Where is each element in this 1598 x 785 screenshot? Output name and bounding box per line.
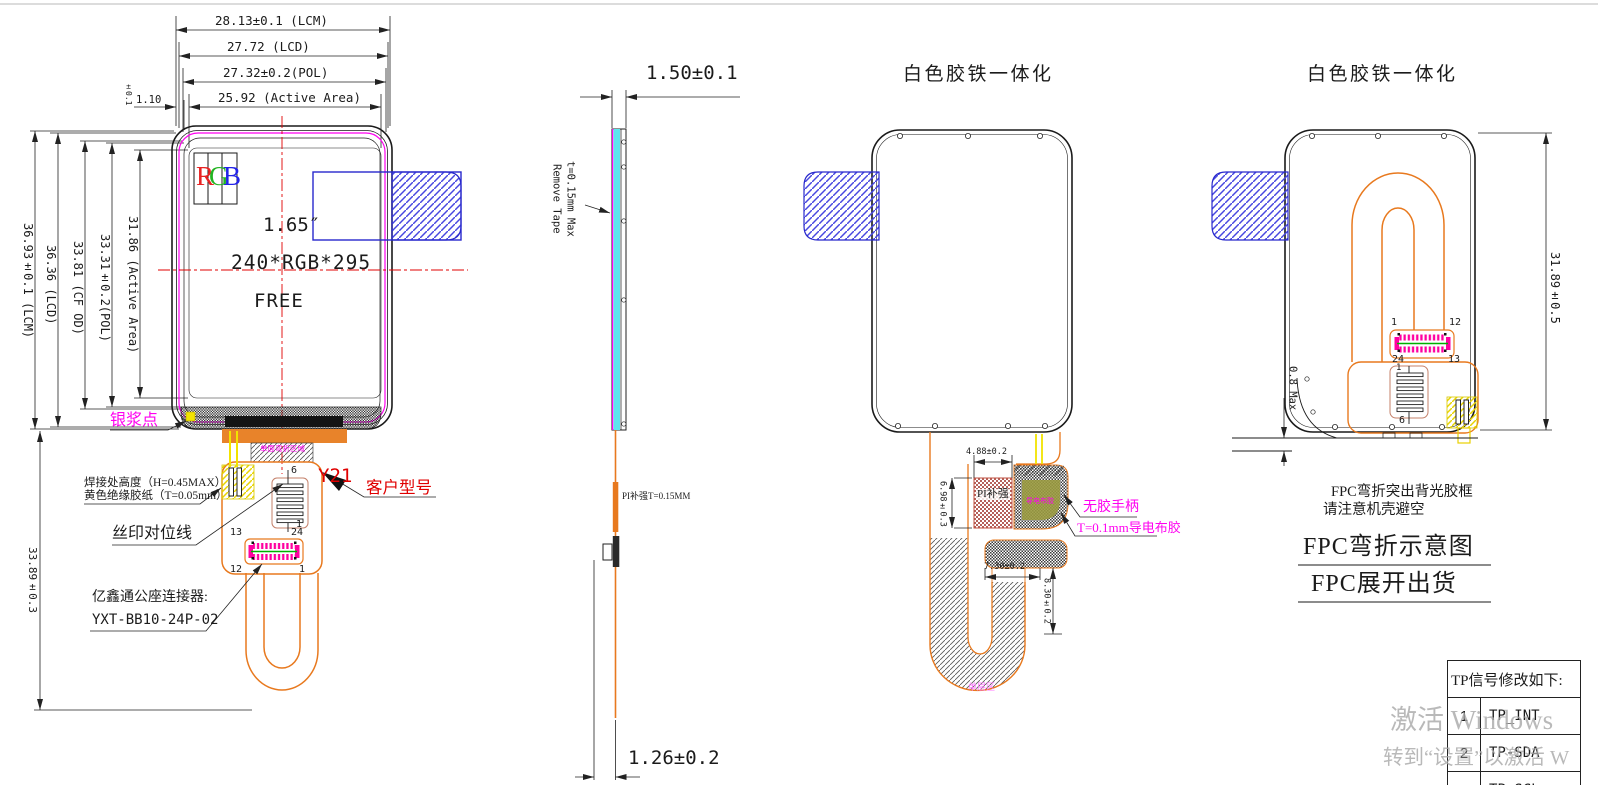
drawing-linework bbox=[0, 0, 1598, 785]
view4-title: 白色胶铁一体化 bbox=[1307, 65, 1458, 84]
dim-lcm-height: 36.93±0.1 (LCM) bbox=[22, 150, 34, 412]
pin-6-zif-view4: 6 bbox=[1399, 416, 1405, 426]
view1-dimension-lines bbox=[30, 16, 390, 710]
panel-size-label: 1.65″ bbox=[263, 216, 320, 235]
bend-zone-label: 单面弯折区域 bbox=[260, 445, 305, 453]
pi-stiffener-note: PI补强T=0.15MM bbox=[622, 492, 690, 501]
fold-diagram-caption: FPC弯折示意图 bbox=[1303, 535, 1474, 559]
pin-12: 12 bbox=[230, 565, 242, 575]
connector-note-line2: YXT-BB10-24P-02 bbox=[92, 613, 218, 627]
conductive-tape-label: T=0.1mm导电布胶 bbox=[1077, 521, 1181, 534]
silk-align-label: 丝印对位线 bbox=[112, 526, 192, 542]
table-row: 3 TP-SCL bbox=[1448, 772, 1580, 785]
dim-fpc-length: 33.89±0.3 bbox=[27, 532, 38, 628]
blue-shield-pad-view4 bbox=[1212, 172, 1288, 240]
dim-cf-height: 33.81 (CF OD) bbox=[72, 168, 84, 408]
connector-side bbox=[613, 536, 620, 567]
dim-gap: 1.10 bbox=[136, 95, 161, 106]
view1-fpc-body bbox=[222, 431, 322, 690]
dim-fpc-thickness: 1.26±0.2 bbox=[628, 749, 720, 768]
drawing-canvas: 28.13±0.1 (LCM) 27.72 (LCD) 27.32±0.2(PO… bbox=[0, 0, 1598, 785]
dim-fold-height: 31.89±0.5 bbox=[1549, 232, 1561, 344]
fold-note-line2: 请注意机壳避空 bbox=[1323, 503, 1425, 518]
customer-model-label: 客户型号 bbox=[366, 480, 432, 497]
pin-13: 13 bbox=[230, 528, 242, 538]
model-code: Y21 bbox=[318, 467, 352, 486]
dim-active-height: 31.86 (Active Area) bbox=[127, 162, 139, 407]
rgb-letter-b: B bbox=[223, 163, 241, 190]
connector-note-line1: 亿鑫通公座连接器: bbox=[92, 591, 208, 605]
dim-tape-offset: 8.30±0.2 bbox=[1042, 572, 1051, 630]
blue-shield-pad-view1 bbox=[313, 172, 461, 240]
zif-finger-contacts-view4 bbox=[1390, 366, 1428, 424]
resolution-label: 240*RGB*295 bbox=[231, 253, 371, 273]
fold-note-line1: FPC弯折突出背光胶框 bbox=[1331, 485, 1473, 500]
tp-row-number: 3 bbox=[1448, 772, 1481, 785]
pin-1-zif-view4: 1 bbox=[1396, 364, 1401, 373]
pi-stiffener-label: PI补强 bbox=[976, 489, 1010, 500]
tp-row-signal: TP_INT bbox=[1481, 698, 1580, 734]
conductive-tape-small-label: 导电布胶 bbox=[1026, 498, 1054, 505]
yellow-insulation-tape-view4 bbox=[1447, 397, 1477, 428]
tp-table-header: TP信号修改如下: bbox=[1448, 661, 1580, 698]
remove-tape-line2: t=0.15mm Max bbox=[565, 140, 576, 258]
dim-lcd-height: 36.36 (LCD) bbox=[45, 160, 57, 410]
view1-bottom-seal-band bbox=[181, 407, 381, 462]
silver-dot-label: 银浆点 bbox=[110, 413, 158, 429]
pin-12-view4: 12 bbox=[1449, 318, 1461, 328]
pi-stiffener-block bbox=[974, 478, 1012, 528]
dim-tape-width: 7.30±0.2 bbox=[984, 563, 1025, 572]
pin-13-view4: 13 bbox=[1448, 355, 1460, 365]
solder-note-line2: 黄色绝缘胶纸（T=0.05mm） bbox=[84, 491, 228, 503]
dim-pol-height: 33.31±0.2(POL) bbox=[99, 165, 111, 410]
solder-note-line1: 焊接处高度（H=0.45MAX） bbox=[84, 478, 226, 490]
dim-lcm-width: 28.13±0.1 (LCM) bbox=[215, 15, 328, 28]
ship-unfolded-caption: FPC展开出货 bbox=[1311, 572, 1457, 596]
tp-row-signal: TP-SCL bbox=[1481, 772, 1580, 785]
glass-stack-cyan bbox=[614, 129, 621, 430]
no-glue-handle-label: 无胶手柄 bbox=[1083, 501, 1139, 515]
dim-thickness: 1.50±0.1 bbox=[646, 64, 738, 83]
tp-signal-table: TP信号修改如下: 1 TP_INT 2 TP-SDA 3 TP-SCL bbox=[1447, 660, 1581, 785]
fpc-u-loop-outer bbox=[246, 573, 318, 690]
zif-finger-contacts bbox=[272, 470, 308, 532]
view4-body bbox=[1212, 130, 1475, 432]
tp-row-number: 1 bbox=[1448, 698, 1481, 734]
pin-1-connector: 1 bbox=[299, 565, 305, 575]
view3-title: 白色胶铁一体化 bbox=[903, 65, 1054, 84]
free-label: FREE bbox=[254, 292, 304, 311]
view3-fpc-unfolded bbox=[930, 432, 1157, 690]
dim-pi-width: 4.88±0.2 bbox=[966, 448, 1007, 457]
remove-tape-line1: Remove Tape bbox=[551, 140, 562, 258]
table-row: 1 TP_INT bbox=[1448, 698, 1580, 735]
board-to-board-connector bbox=[245, 539, 303, 564]
silver-dot-mark bbox=[186, 412, 195, 421]
blue-shield-pad-view3 bbox=[804, 172, 879, 240]
dim-lcd-width: 27.72 (LCD) bbox=[227, 41, 310, 54]
view3-body bbox=[804, 130, 1072, 432]
table-row: 2 TP-SDA bbox=[1448, 735, 1580, 772]
dim-pi-height: 6.98±0.3 bbox=[938, 480, 947, 528]
dim-active-width: 25.92 (Active Area) bbox=[218, 92, 361, 105]
pin-1-view4: 1 bbox=[1391, 318, 1397, 328]
dim-gap-tol: ±0.1 bbox=[124, 80, 132, 108]
tp-row-number: 2 bbox=[1448, 735, 1481, 771]
fpc-u-loop-inner bbox=[264, 573, 300, 668]
pin-24: 24 bbox=[291, 528, 303, 538]
single-layer-label: 单层区 bbox=[968, 683, 995, 692]
tp-row-signal: TP-SDA bbox=[1481, 735, 1580, 771]
pi-stiffener-side bbox=[613, 482, 619, 532]
pin-6: 6 bbox=[291, 466, 297, 476]
dim-fold-protrusion: 0.8 Max bbox=[1287, 360, 1298, 416]
dim-pol-width: 27.32±0.2(POL) bbox=[223, 67, 328, 80]
view2-side-view bbox=[575, 90, 740, 780]
fpc-bonding-band bbox=[222, 429, 347, 443]
